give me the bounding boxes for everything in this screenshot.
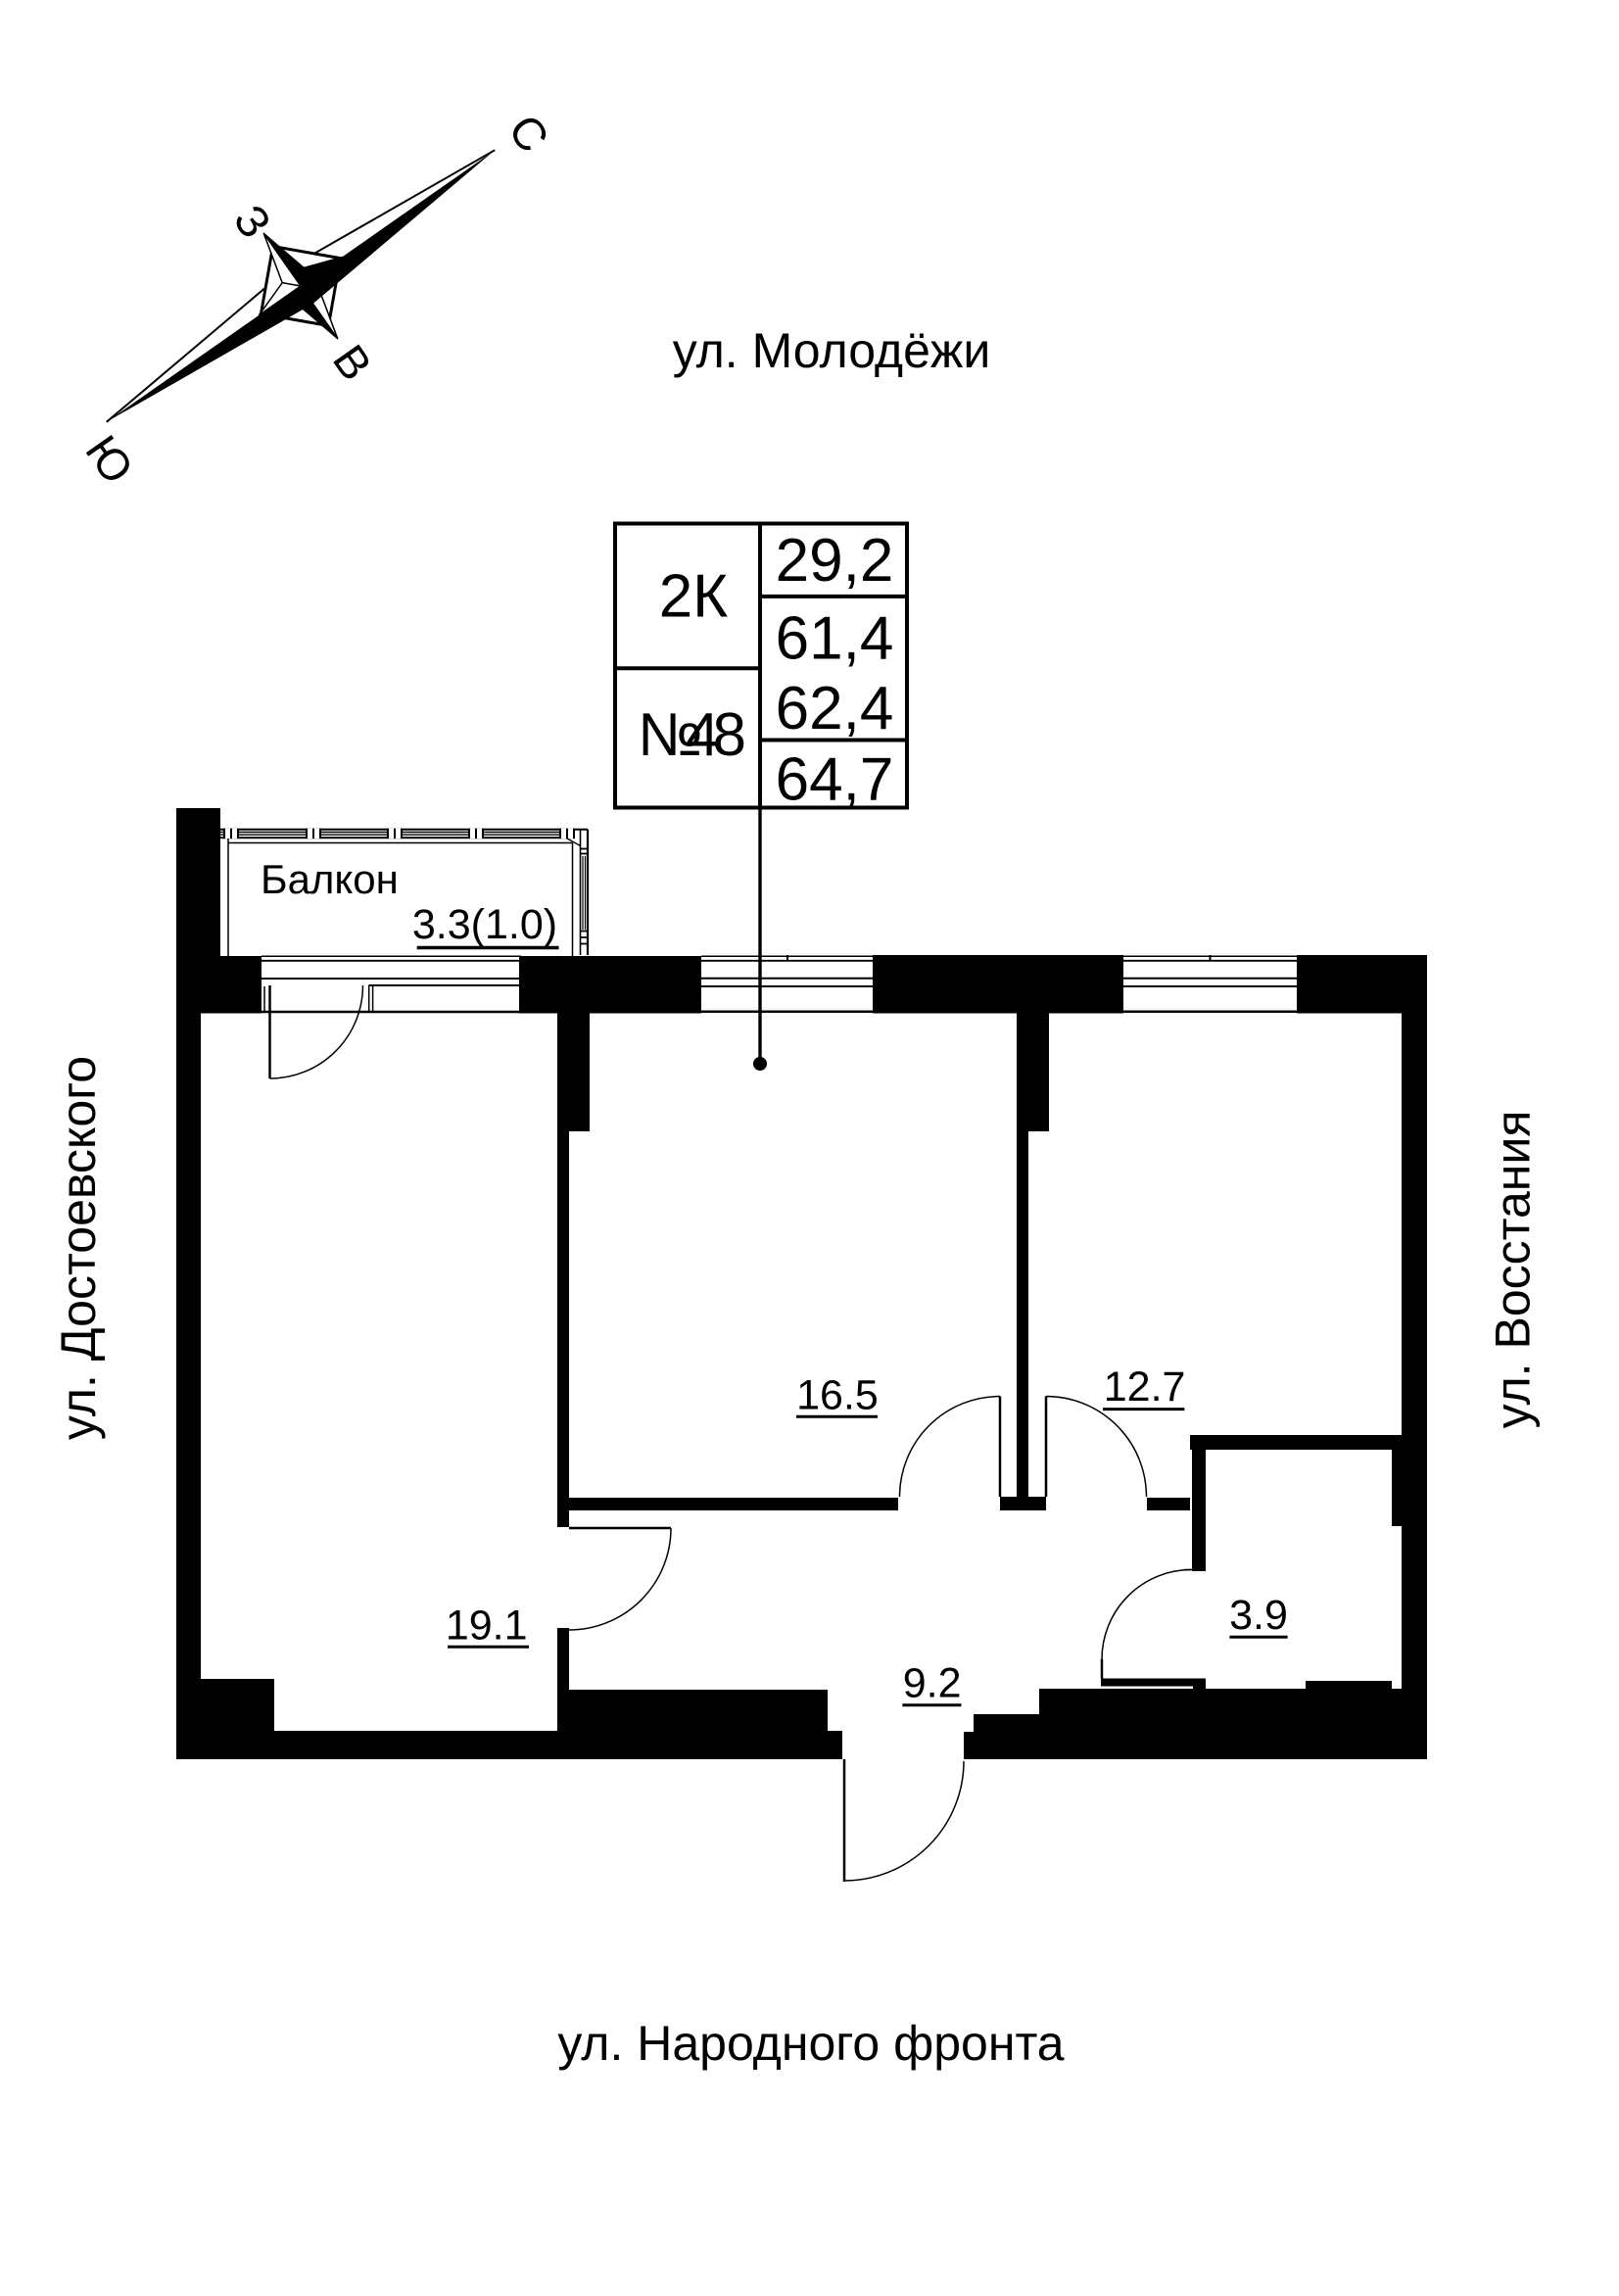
svg-text:3.9: 3.9 [1229,1592,1288,1639]
svg-text:3.3(1.0): 3.3(1.0) [412,901,557,948]
svg-text:12.7: 12.7 [1104,1363,1186,1411]
svg-text:64,7: 64,7 [776,746,894,814]
svg-text:48: 48 [686,701,743,769]
svg-text:16.5: 16.5 [796,1371,879,1418]
svg-text:ул. Народного фронта: ул. Народного фронта [557,2016,1064,2071]
svg-text:ул. Восстания: ул. Восстания [1486,1111,1541,1429]
svg-text:ул. Достоевского: ул. Достоевского [51,1056,106,1440]
svg-text:61,4: 61,4 [776,605,894,673]
svg-text:Балкон: Балкон [261,856,399,902]
svg-text:ул. Молодёжи: ул. Молодёжи [673,323,991,378]
svg-text:9.2: 9.2 [903,1659,962,1706]
svg-text:2К: 2К [659,563,729,631]
svg-text:19.1: 19.1 [446,1602,528,1649]
svg-text:62,4: 62,4 [776,675,894,742]
svg-text:29,2: 29,2 [776,527,894,595]
